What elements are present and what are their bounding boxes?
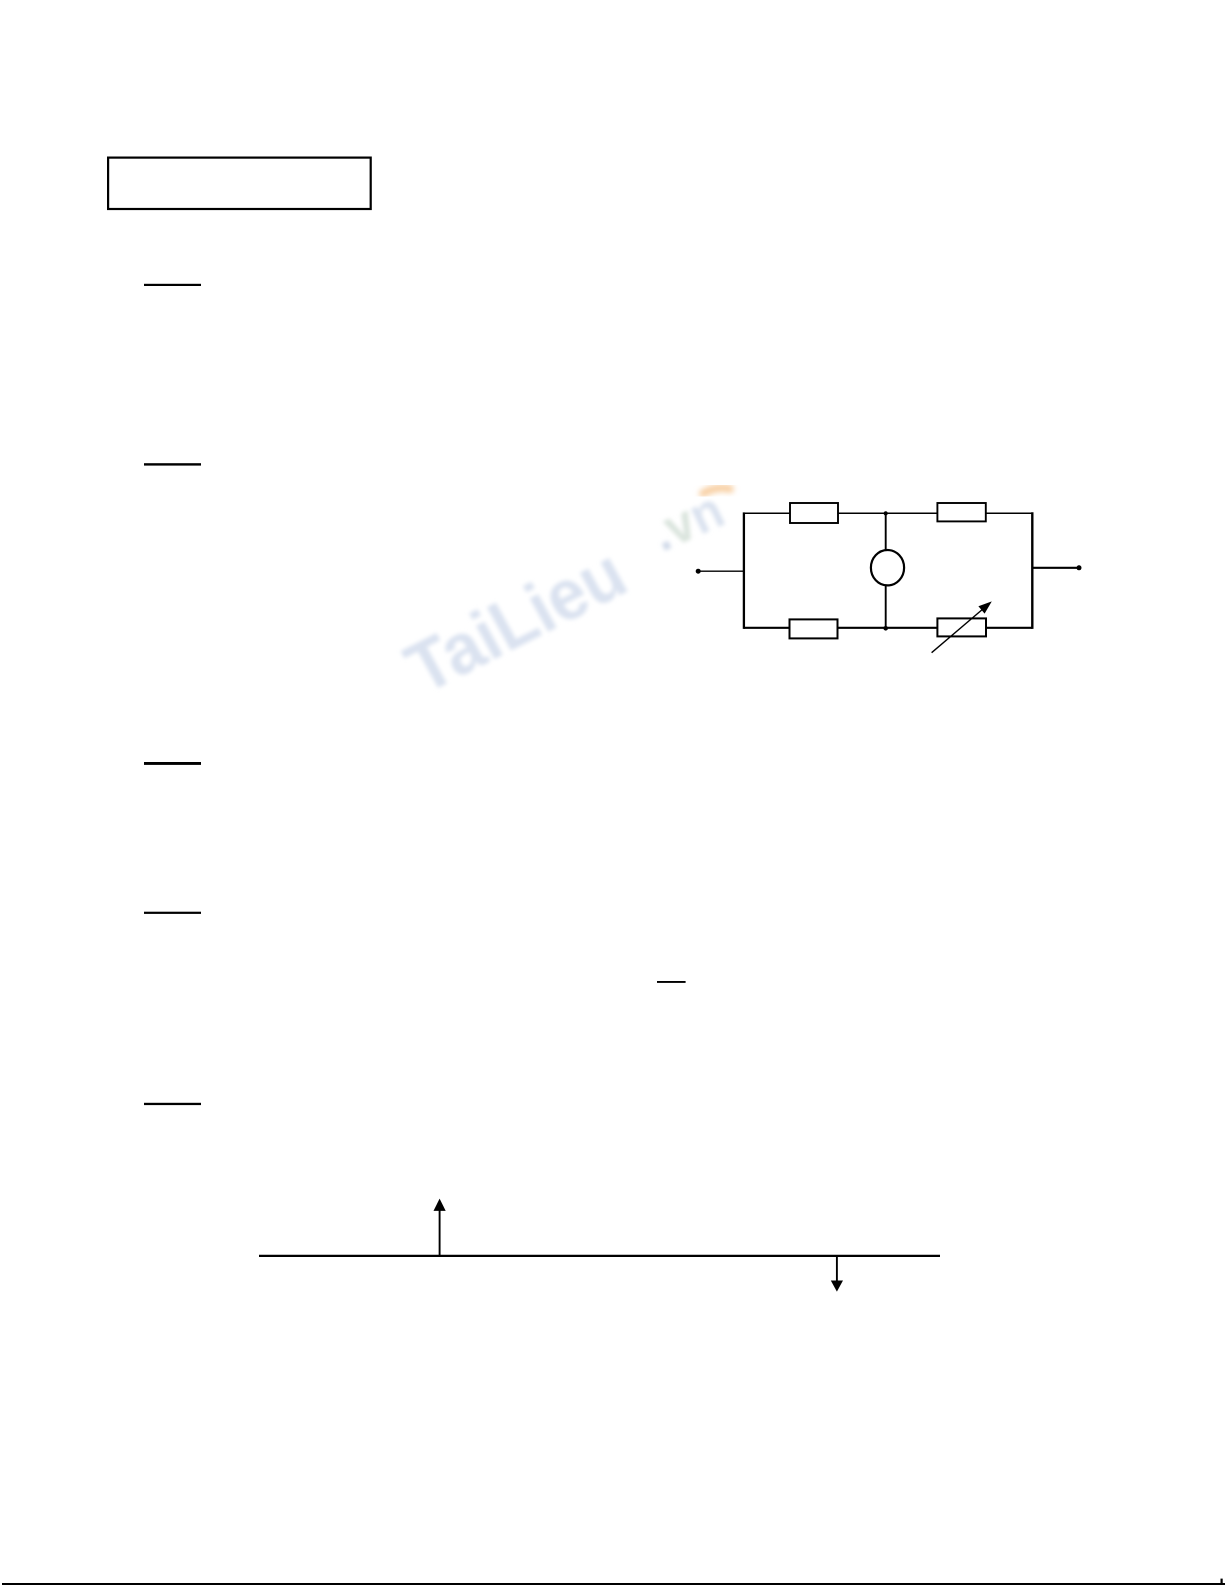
- svg-text:TaiLieu: TaiLieu: [393, 533, 639, 709]
- svg-text:.vn: .vn: [642, 481, 733, 562]
